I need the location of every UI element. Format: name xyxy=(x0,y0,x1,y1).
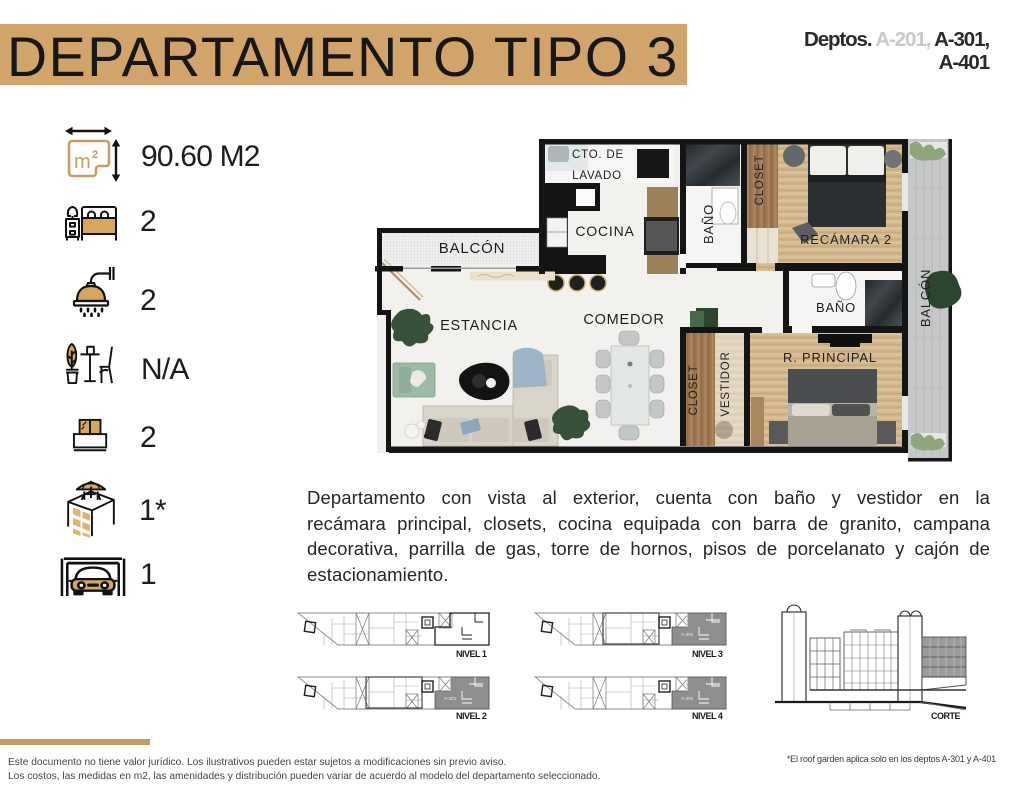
svg-text:BAÑO: BAÑO xyxy=(816,300,856,315)
svg-text:COMEDOR: COMEDOR xyxy=(583,312,664,328)
svg-text:CLOSET: CLOSET xyxy=(688,365,700,416)
svg-text:BAÑO: BAÑO xyxy=(701,204,716,244)
svg-text:LAVADO: LAVADO xyxy=(572,170,622,182)
svg-text:CLOSET: CLOSET xyxy=(754,155,766,206)
svg-text:R. PRINCIPAL: R. PRINCIPAL xyxy=(783,350,877,365)
svg-text:COCINA: COCINA xyxy=(575,223,634,239)
svg-text:BALCÓN: BALCÓN xyxy=(918,269,933,327)
svg-text:m: m xyxy=(74,151,91,173)
svg-text:A-201: A-201 xyxy=(444,696,457,701)
svg-text:CTO. DE: CTO. DE xyxy=(572,149,624,161)
svg-text:BALCÓN: BALCÓN xyxy=(439,240,506,257)
svg-text:VESTIDOR: VESTIDOR xyxy=(720,351,732,416)
svg-text:2: 2 xyxy=(92,149,98,161)
svg-text:RECÁMARA 2: RECÁMARA 2 xyxy=(800,232,892,247)
svg-text:ESTANCIA: ESTANCIA xyxy=(440,318,518,334)
svg-text:A-301: A-301 xyxy=(681,632,694,637)
svg-text:A-401: A-401 xyxy=(681,696,694,701)
